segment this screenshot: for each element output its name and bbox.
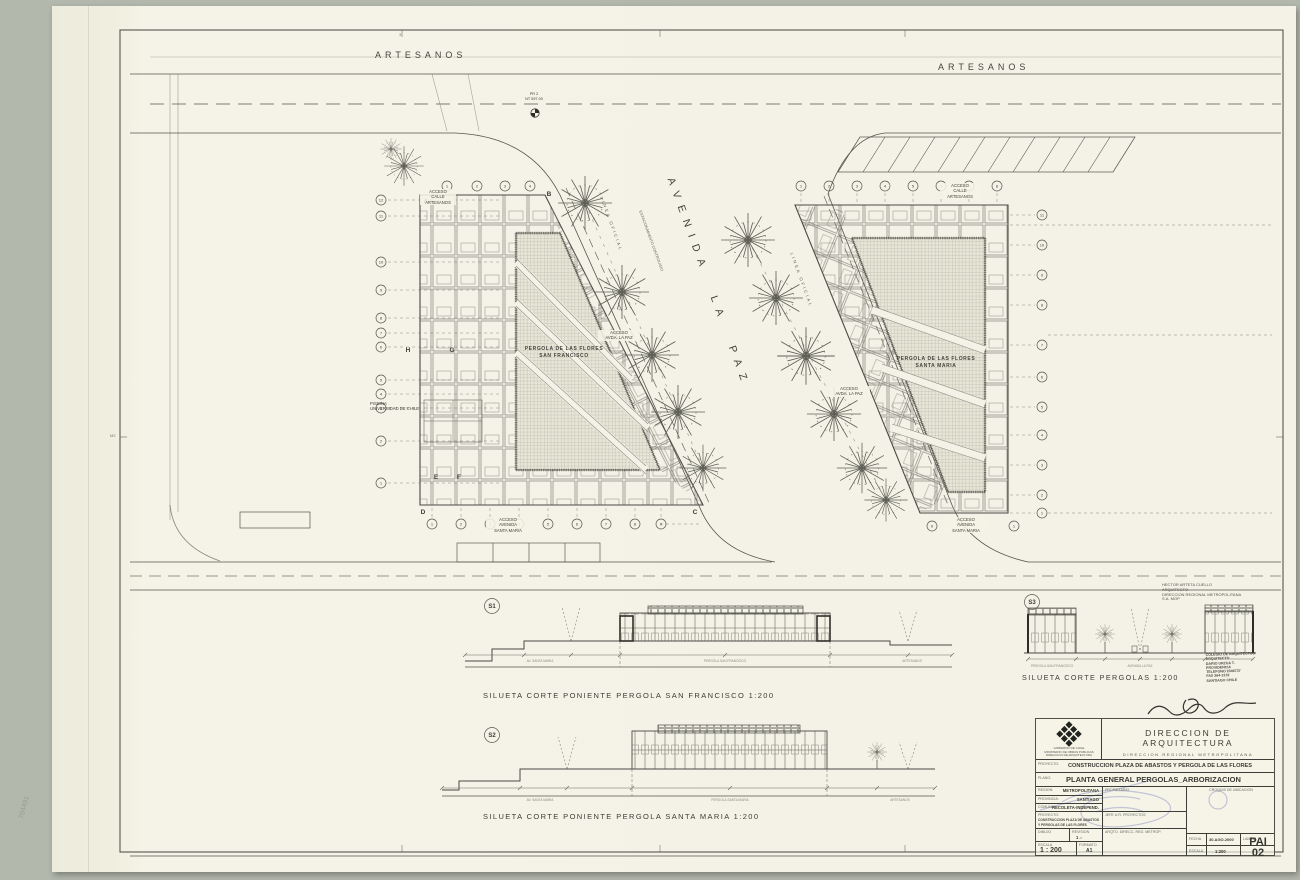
grid-letter: D bbox=[421, 509, 426, 516]
survey-benchmark-icon bbox=[531, 109, 539, 117]
axis-bubble-label: 2 bbox=[476, 184, 479, 189]
axis-bubble-label: 5 bbox=[912, 184, 915, 189]
axis-bubble-label: 4 bbox=[380, 392, 383, 397]
s3-building-right bbox=[1205, 611, 1253, 653]
acceso-artesanos-right: ACCESOCALLEARTESANOS bbox=[940, 183, 980, 199]
margin-mark: M2 bbox=[110, 433, 116, 438]
croquis-cell: CROQUIS DE UBICACION bbox=[1186, 787, 1274, 833]
dim-label: AV. SANTA MARIA bbox=[527, 798, 555, 802]
parking-stall-line bbox=[938, 137, 960, 172]
proyecto-row: PROYECTO: CONSTRUCCION PLAZA DE ABASTOS … bbox=[1036, 759, 1274, 772]
s2-caption: SILUETA CORTE PONIENTE PERGOLA SANTA MAR… bbox=[483, 812, 759, 821]
axis-bubble-label: 1 bbox=[380, 481, 383, 486]
dim-label: ARTESANOS bbox=[902, 659, 922, 663]
axis-bubble-label: 9 bbox=[380, 288, 383, 293]
axis-bubble-label: 7 bbox=[1041, 343, 1044, 348]
axis-bubble-label: 2 bbox=[460, 522, 463, 527]
axis-bubble-label: 8 bbox=[996, 184, 999, 189]
axis-bubble-label: 2 bbox=[1041, 493, 1044, 498]
parking-area bbox=[838, 137, 1135, 172]
logo-caption: GOBIERNO DE CHILEMINISTERIO DE OBRAS PUB… bbox=[1036, 747, 1102, 758]
tree-icon bbox=[864, 478, 907, 521]
grid-letter: H bbox=[406, 347, 411, 354]
axis-bubble-label: 9 bbox=[1041, 273, 1044, 278]
acceso-artesanos-left: ACCESOCALLEARTESANOS bbox=[420, 189, 456, 205]
plano-value: PLANTA GENERAL PERGOLAS_ARBORIZACION bbox=[1066, 775, 1241, 784]
acceso-santamaria-left: ACCESOAVENIDASANTA MARIA bbox=[486, 517, 530, 533]
axis-bubble-label: 10 bbox=[1040, 243, 1045, 248]
s3-tree-trunks bbox=[1105, 642, 1172, 653]
comuna-row: COMUNA: RECOLETA-INDEPEND. bbox=[1036, 803, 1102, 811]
tree-projection-flag bbox=[1131, 608, 1149, 650]
tree-projection-flag bbox=[558, 737, 576, 769]
acceso-lapaz-left: ACCESOAVDA. LA PAZ bbox=[598, 330, 640, 341]
acceso-lapaz-right: ACCESOAVDA. LA PAZ bbox=[828, 386, 870, 397]
provincia-row: PROVINCIA: SANTIAGO bbox=[1036, 795, 1102, 803]
s1-building bbox=[620, 613, 830, 641]
s3-caption: SILUETA CORTE PERGOLAS 1:200 bbox=[1022, 673, 1179, 682]
tree-icon bbox=[1162, 624, 1182, 644]
lamina-value-cell: PAI 02 bbox=[1240, 845, 1274, 856]
fecha-label-cell: FECHA bbox=[1186, 833, 1206, 845]
dim-label: ARTESANOS bbox=[890, 798, 910, 802]
tree-icon bbox=[777, 327, 835, 385]
axis-bubble-label: 8 bbox=[634, 522, 637, 527]
s1-roof bbox=[648, 606, 803, 614]
s2-roof bbox=[658, 725, 800, 733]
tree-icon bbox=[749, 271, 803, 325]
street-label-artesanos-left: ARTESANOS bbox=[375, 50, 466, 60]
street-label-artesanos-right: ARTESANOS bbox=[938, 62, 1029, 72]
s2-cut bbox=[632, 769, 827, 796]
title-block: GOBIERNO DE CHILEMINISTERIO DE OBRAS PUB… bbox=[1035, 718, 1275, 856]
jefe-cell: JEFE U.R. PROYECTOS bbox=[1102, 811, 1186, 828]
tree-icon bbox=[867, 742, 887, 762]
axis-bubble-label: 2 bbox=[380, 439, 383, 444]
proyecto2-cell: PROYECTO: CONSTRUCCION PLAZA DE ABASTOS … bbox=[1036, 811, 1102, 828]
tree-projection-flag bbox=[899, 742, 917, 769]
parking-stall-line bbox=[838, 137, 860, 172]
axis-bubble-label: 12 bbox=[379, 198, 384, 203]
axis-bubble-label: 9 bbox=[931, 524, 934, 529]
axis-bubble-label: 5 bbox=[1041, 405, 1044, 410]
section-tag-label: S1 bbox=[488, 604, 496, 610]
tree-projection-flag bbox=[562, 607, 580, 641]
parking-stall-line bbox=[988, 137, 1010, 172]
dibujo-cell: DIBUJO bbox=[1036, 828, 1069, 841]
grid-letter: F bbox=[457, 474, 461, 481]
scanned-sheet: 1211109876543211234123456789123456781110… bbox=[0, 0, 1300, 880]
s3-kiosk bbox=[1132, 646, 1137, 652]
pergola-sf-name: PERGOLA DE LAS FLORES SAN FRANCISCO bbox=[518, 346, 610, 359]
fold-mark: 3 bbox=[399, 32, 401, 37]
parking-stall-line bbox=[913, 137, 935, 172]
axis-bubble-label: 3 bbox=[856, 184, 859, 189]
arqto-cell: ARQTO. DIRECC. REG. METROP. bbox=[1102, 828, 1186, 856]
s3-kiosk bbox=[1143, 646, 1148, 652]
org-cell: DIRECCION DE ARQUITECTURA DIRECCION REGI… bbox=[1102, 719, 1274, 759]
axis-bubble-label: 3 bbox=[1041, 463, 1044, 468]
grid-letter: B bbox=[547, 191, 552, 198]
axis-bubble-label: 6 bbox=[576, 522, 579, 527]
pergola-sm-name: PERGOLA DE LAS FLORES SANTA MARIA bbox=[888, 356, 984, 369]
axis-bubble-label: 6 bbox=[1041, 375, 1044, 380]
axis-bubble-label: 5 bbox=[547, 522, 550, 527]
tb-grid: REGION: METROPOLITANA PROVINCIA: SANTIAG… bbox=[1036, 786, 1274, 855]
logo-cell: GOBIERNO DE CHILEMINISTERIO DE OBRAS PUB… bbox=[1036, 719, 1102, 759]
region-row: REGION: METROPOLITANA bbox=[1036, 787, 1102, 795]
fecha-value-cell: 30.AGO.2000 bbox=[1206, 833, 1240, 845]
tree-icon bbox=[721, 213, 775, 267]
s1-cut bbox=[620, 641, 830, 667]
s1-caption: SILUETA CORTE PONIENTE PERGOLA SAN FRANC… bbox=[483, 691, 774, 700]
piscina-label: PISCINA UNIVERSIDAD DE CHILE bbox=[370, 401, 419, 412]
org-line1: DIRECCION DE ARQUITECTURA bbox=[1102, 728, 1274, 748]
tree-icon bbox=[837, 443, 887, 493]
dim-label: PERGOLA SANTA MARIA bbox=[711, 798, 749, 802]
escala2-value-cell: 1:200 bbox=[1206, 845, 1240, 856]
s1-ground bbox=[465, 641, 952, 661]
axis-bubble-label: 11 bbox=[1040, 213, 1045, 218]
escala2-label-cell: ESCALA bbox=[1186, 845, 1206, 856]
axis-bubble-label: 10 bbox=[379, 260, 384, 265]
s3-roof-right bbox=[1205, 605, 1253, 612]
architect-note: HECTOR ARTETA CUELLOARQUITECTODIRECCION … bbox=[1162, 583, 1241, 602]
section-tag-label: S3 bbox=[1028, 600, 1036, 606]
s2-ground bbox=[442, 769, 935, 790]
parking-stall-line bbox=[1113, 137, 1135, 172]
s3-roof-left bbox=[1028, 608, 1076, 615]
section-tag-label: S2 bbox=[488, 733, 496, 739]
axis-bubble-label: 1 bbox=[800, 184, 803, 189]
axis-bubble-label: 6 bbox=[380, 345, 383, 350]
acceso-santamaria-right: ACCESOAVENIDASANTA MARIA bbox=[944, 517, 988, 533]
parking-stall-line bbox=[963, 137, 985, 172]
tree-icon bbox=[1095, 624, 1115, 644]
dim-label: AV. SANTA MARIA bbox=[527, 659, 555, 663]
escala-cell: ESCALA 1 : 200 bbox=[1036, 841, 1076, 856]
axis-bubble-label: 4 bbox=[884, 184, 887, 189]
parking-stall-line bbox=[888, 137, 910, 172]
parking-stall-line bbox=[863, 137, 885, 172]
signature-ink bbox=[1148, 699, 1256, 715]
axis-bubble-label: 7 bbox=[380, 331, 383, 336]
axis-bubble-label: 7 bbox=[605, 522, 608, 527]
axis-bubble-label: 4 bbox=[1041, 433, 1044, 438]
axis-bubble-label: 1 bbox=[1013, 524, 1016, 529]
org-line2: DIRECCION REGIONAL METROPOLITANA bbox=[1102, 752, 1274, 757]
axis-bubble-label: 5 bbox=[380, 378, 383, 383]
parking-stall-line bbox=[1088, 137, 1110, 172]
revision-cell: REVISION 1 .- bbox=[1069, 828, 1102, 841]
proyecto-value: CONSTRUCCION PLAZA DE ABASTOS Y PERGOLA … bbox=[1068, 763, 1252, 769]
parking-stall-line bbox=[1038, 137, 1060, 172]
survey-label: PR 2 NT 597.00 bbox=[516, 92, 552, 101]
formato-cell: FORMATO A1 bbox=[1076, 841, 1102, 856]
lamina-number: 02 bbox=[1252, 847, 1264, 859]
axis-bubble-label: 1 bbox=[431, 522, 434, 527]
axis-bubble-label: 11 bbox=[379, 214, 384, 219]
axis-bubble-label: 8 bbox=[1041, 303, 1044, 308]
dim-label: PERGOLA SAN FRANCISCO bbox=[1031, 664, 1074, 668]
bottom-parking bbox=[457, 543, 600, 562]
plano-row: PLANO: PLANTA GENERAL PERGOLAS_ARBORIZAC… bbox=[1036, 772, 1274, 786]
dim-label: PERGOLA SAN FRANCISCO bbox=[704, 659, 747, 663]
grid-letter: G bbox=[449, 347, 454, 354]
axis-bubble-label: 8 bbox=[380, 316, 383, 321]
parking-stall-line bbox=[1063, 137, 1085, 172]
axis-bubble-label: 1 bbox=[446, 184, 449, 189]
axis-bubble-label: 1 bbox=[1041, 511, 1044, 516]
architect-stamp: COLEGIO DE ARQUITECTOSARQUITECTODARIO UR… bbox=[1205, 651, 1262, 683]
parking-stall-line bbox=[1013, 137, 1035, 172]
propietario-cell: PROPIETARIO bbox=[1102, 787, 1186, 811]
dim-label: AVENIDA LA PAZ bbox=[1127, 664, 1152, 668]
axis-bubble-label: 3 bbox=[504, 184, 507, 189]
grid-letter: E bbox=[434, 474, 439, 481]
axis-bubble-label: 4 bbox=[529, 184, 532, 189]
ministry-logo bbox=[1054, 721, 1084, 747]
tree-projection-flag bbox=[899, 610, 917, 641]
s3-building-left bbox=[1028, 614, 1076, 653]
grid-letter: C bbox=[693, 509, 698, 516]
